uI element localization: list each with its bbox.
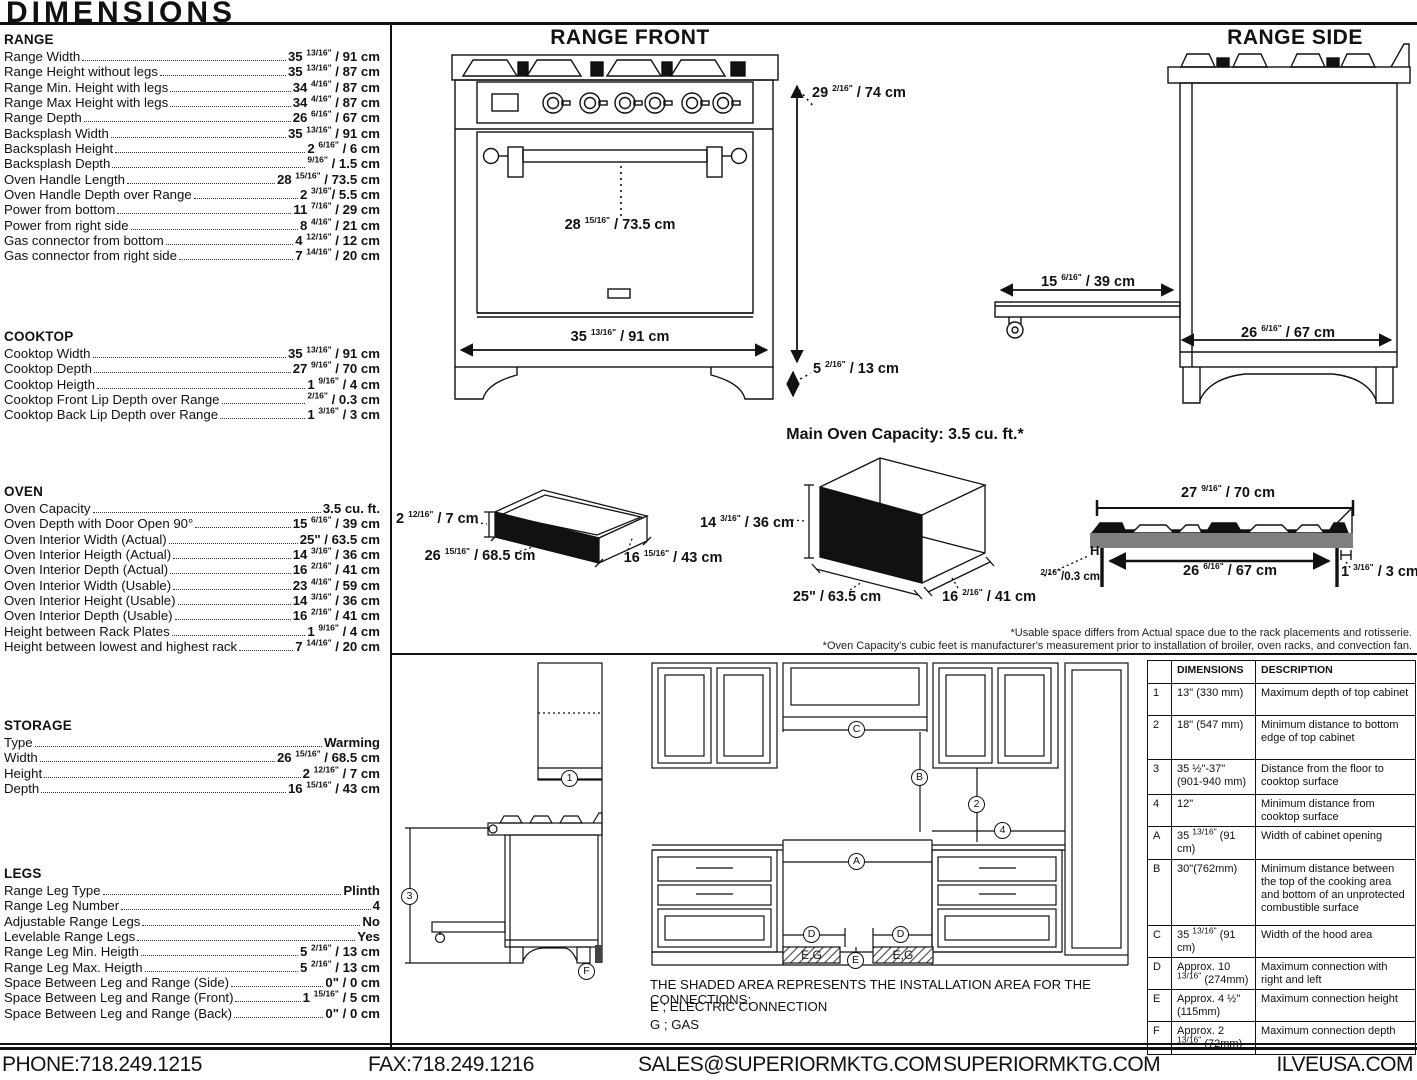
callout-a: A — [848, 853, 865, 870]
row-description: Distance from the floor to cooktop surfa… — [1256, 760, 1416, 795]
spec-value: 0" / 0 cm — [325, 1006, 380, 1021]
dot-leader — [142, 925, 360, 926]
spec-label: Height between lowest and highest rack — [4, 639, 237, 654]
dot-leader — [166, 244, 294, 245]
spec-label: Height — [4, 766, 42, 781]
dot-leader — [170, 573, 291, 574]
row-dimension: Approx. 4 ½" (115mm) — [1172, 989, 1256, 1021]
oven-height-dimension: 14 3/16" / 36 cm — [700, 515, 788, 531]
spec-value: 35 13/16" / 87 cm — [288, 64, 380, 79]
spec-label: Oven Interior Width (Usable) — [4, 578, 171, 593]
footer-rule-thin — [0, 1043, 1417, 1045]
range-spec-section: RANGE Range Width35 13/16" / 91 cm Range… — [4, 32, 380, 264]
dot-leader — [141, 955, 298, 956]
dot-leader — [82, 60, 286, 61]
callout-4: 4 — [994, 822, 1011, 839]
spec-value: Warming — [324, 735, 380, 750]
spec-row: Range Leg Max. Heigth5 2/16" / 13 cm — [4, 960, 380, 975]
spec-row: Adjustable Range LegsNo — [4, 914, 380, 929]
row-description: Maximum depth of top cabinet — [1256, 684, 1416, 716]
row-id: C — [1148, 926, 1172, 958]
spec-value: 1 3/16" / 3 cm — [307, 407, 380, 422]
dot-leader — [234, 1017, 323, 1018]
spec-value: 1 9/16" / 4 cm — [307, 624, 380, 639]
dot-leader — [93, 512, 321, 513]
callout-f: F — [578, 963, 595, 980]
spec-label: Range Depth — [4, 110, 82, 125]
side-door-dimension: 15 6/16" / 39 cm — [1013, 274, 1163, 290]
front-handle-dimension: 28 15/16" / 73.5 cm — [525, 217, 715, 233]
dot-leader — [173, 589, 291, 590]
row-id: 2 — [1148, 716, 1172, 760]
callout-2: 2 — [968, 796, 985, 813]
spec-value: 2/16" / 0.3 cm — [307, 392, 380, 407]
install-side-drawing — [400, 658, 650, 1008]
spec-row: Backsplash Depth9/16" / 1.5 cm — [4, 156, 380, 171]
section-heading: OVEN — [4, 484, 380, 501]
row-dimension: 13" (330 mm) — [1172, 684, 1256, 716]
footer-website: SUPERIORMKTG.COM — [943, 1053, 1160, 1077]
row-id: B — [1148, 860, 1172, 926]
table-row: 218" (547 mm)Minimum distance to bottom … — [1148, 716, 1416, 760]
spec-label: Type — [4, 735, 33, 750]
section-heading: LEGS — [4, 866, 380, 883]
spec-value: 16 2/16" / 41 cm — [293, 562, 380, 577]
table-row: A35 13/16" (91 cm)Width of cabinet openi… — [1148, 827, 1416, 860]
spec-label: Backsplash Height — [4, 141, 113, 156]
spec-value: 0" / 0 cm — [325, 975, 380, 990]
spec-row: Range Leg Number4 — [4, 898, 380, 913]
oven-spec-section: OVEN Oven Capacity3.5 cu. ft. Oven Depth… — [4, 484, 380, 654]
row-id: E — [1148, 989, 1172, 1021]
spec-value: 9/16" / 1.5 cm — [307, 156, 380, 171]
drawer-height-dimension: 2 12/16" / 7 cm — [396, 511, 472, 527]
installation-drawing — [645, 658, 1145, 973]
spec-value: Plinth — [343, 883, 380, 898]
dot-leader — [84, 121, 291, 122]
dot-leader — [239, 650, 293, 651]
dot-leader — [44, 777, 301, 778]
row-dimension: 12" — [1172, 795, 1256, 827]
dot-leader — [172, 635, 306, 636]
spec-label: Backsplash Depth — [4, 156, 110, 171]
dot-leader — [103, 894, 342, 895]
spec-label: Levelable Range Legs — [4, 929, 135, 944]
table-row: 412"Minimum distance from cooktop surfac… — [1148, 795, 1416, 827]
row-id: D — [1148, 957, 1172, 989]
spec-label: Depth — [4, 781, 39, 796]
row-description: Width of cabinet opening — [1256, 827, 1416, 860]
dot-leader — [127, 183, 275, 184]
spec-value: 25" / 63.5 cm — [300, 532, 380, 547]
spec-value: 7 14/16" / 20 cm — [295, 248, 380, 263]
spec-row: Space Between Leg and Range (Back)0" / 0… — [4, 1006, 380, 1021]
spec-label: Power from bottom — [4, 202, 115, 217]
table-header-row: DIMENSIONS DESCRIPTION — [1148, 661, 1416, 684]
spec-label: Oven Interior Depth (Usable) — [4, 608, 173, 623]
row-dimension: Approx. 10 13/16" (274mm) — [1172, 957, 1256, 989]
spec-label: Range Min. Height with legs — [4, 80, 168, 95]
dot-leader — [145, 971, 298, 972]
oven-width-dimension: 25" / 63.5 cm — [791, 589, 883, 605]
spec-value: 2 12/16" / 7 cm — [303, 766, 380, 781]
dot-leader — [131, 229, 298, 230]
cooktop-top-dimension: 27 9/16" / 70 cm — [1148, 485, 1308, 501]
spec-label: Adjustable Range Legs — [4, 914, 140, 929]
spec-label: Oven Handle Length — [4, 172, 125, 187]
dot-leader — [35, 746, 322, 747]
spec-label: Cooktop Heigth — [4, 377, 95, 392]
callout-e: E — [847, 952, 864, 969]
dot-leader — [111, 137, 286, 138]
spec-value: 11 7/16" / 29 cm — [293, 202, 380, 217]
spec-label: Oven Depth with Door Open 90° — [4, 516, 193, 531]
callout-d-right: D — [892, 926, 909, 943]
spec-label: Oven Handle Depth over Range — [4, 187, 192, 202]
spec-label: Range Leg Min. Heigth — [4, 944, 139, 959]
dot-leader — [178, 604, 291, 605]
row-id: 3 — [1148, 760, 1172, 795]
dot-leader — [93, 357, 286, 358]
spec-label: Space Between Leg and Range (Front) — [4, 990, 233, 1005]
cooktop-h-label: H — [1090, 543, 1099, 558]
cooktop-frontlip-dimension: 2/16"/0.3 cm — [1030, 571, 1100, 583]
spec-value: 28 15/16" / 73.5 cm — [277, 172, 380, 187]
spec-label: Space Between Leg and Range (Back) — [4, 1006, 232, 1021]
spec-label: Oven Interior Depth (Actual) — [4, 562, 168, 577]
dot-leader — [194, 198, 298, 199]
dot-leader — [94, 372, 291, 373]
spec-label: Range Height without legs — [4, 64, 158, 79]
row-id: A — [1148, 827, 1172, 860]
cooktop-backlip-dimension: 1 3/16" / 3 cm — [1341, 564, 1417, 580]
spec-value: 2 6/16" / 6 cm — [307, 141, 380, 156]
spec-value: 5 2/16" / 13 cm — [300, 944, 380, 959]
spec-row: Depth16 15/16" / 43 cm — [4, 781, 380, 796]
spec-label: Space Between Leg and Range (Side) — [4, 975, 229, 990]
table-row: 335 ½"-37" (901-940 mm)Distance from the… — [1148, 760, 1416, 795]
dot-leader — [40, 761, 275, 762]
spec-row: Oven Depth with Door Open 90°15 6/16" / … — [4, 516, 380, 531]
spec-value: 1 9/16" / 4 cm — [307, 377, 380, 392]
spec-label: Range Leg Type — [4, 883, 101, 898]
dot-leader — [117, 213, 291, 214]
spec-value: 7 14/16" / 20 cm — [295, 639, 380, 654]
drawer-depth-dimension: 16 15/16" / 43 cm — [618, 550, 728, 566]
spec-label: Width — [4, 750, 38, 765]
spec-value: 2 3/16"/ 5.5 cm — [300, 187, 380, 202]
row-description: Maximum connection with right and left — [1256, 957, 1416, 989]
table-header-dimensions: DIMENSIONS — [1172, 661, 1256, 684]
spec-row: TypeWarming — [4, 735, 380, 750]
front-width-dimension: 35 13/16" / 91 cm — [530, 329, 710, 345]
spec-value: 26 6/16" / 67 cm — [293, 110, 380, 125]
spec-value: 8 4/16" / 21 cm — [300, 218, 380, 233]
footer-ilve-website: ILVEUSA.COM — [1240, 1053, 1413, 1077]
footer-phone: PHONE:718.249.1215 — [2, 1053, 202, 1077]
dot-leader — [222, 403, 306, 404]
range-side-drawing — [985, 22, 1417, 422]
spec-label: Gas connector from bottom — [4, 233, 164, 248]
row-description: Minimum distance to bottom edge of top c… — [1256, 716, 1416, 760]
spec-label: Cooktop Depth — [4, 361, 92, 376]
spec-value: 27 9/16" / 70 cm — [293, 361, 380, 376]
spec-value: No — [362, 914, 380, 929]
dot-leader — [41, 792, 286, 793]
dot-leader — [112, 167, 305, 168]
spec-value: 34 4/16" / 87 cm — [293, 95, 380, 110]
spec-value: 14 3/16" / 36 cm — [293, 593, 380, 608]
row-description: Maximum connection height — [1256, 989, 1416, 1021]
row-dimension: 35 13/16" (91 cm) — [1172, 827, 1256, 860]
spec-label: Power from right side — [4, 218, 129, 233]
side-depth-dimension: 26 6/16" / 67 cm — [1213, 325, 1363, 341]
footnote-usable-space: *Usable space differs from Actual space … — [600, 627, 1412, 639]
footer-fax: FAX:718.249.1216 — [368, 1053, 534, 1077]
dot-leader — [179, 259, 293, 260]
section-heading: STORAGE — [4, 718, 380, 735]
row-dimension: 18" (547 mm) — [1172, 716, 1256, 760]
table-row: DApprox. 10 13/16" (274mm)Maximum connec… — [1148, 957, 1416, 989]
spec-label: Cooktop Front Lip Depth over Range — [4, 392, 220, 407]
row-description: Width of the hood area — [1256, 926, 1416, 958]
dot-leader — [160, 75, 286, 76]
section-heading: COOKTOP — [4, 329, 380, 346]
row-id: 1 — [1148, 684, 1172, 716]
spec-value: 15 6/16" / 39 cm — [293, 516, 380, 531]
legs-spec-section: LEGS Range Leg TypePlinth Range Leg Numb… — [4, 866, 380, 1021]
spec-label: Height between Rack Plates — [4, 624, 170, 639]
spec-value: 34 4/16" / 87 cm — [293, 80, 380, 95]
spec-label: Oven Interior Heigth (Actual) — [4, 547, 171, 562]
row-dimension: 35 ½"-37" (901-940 mm) — [1172, 760, 1256, 795]
dot-leader — [175, 619, 291, 620]
spec-row: Gas connector from right side7 14/16" / … — [4, 248, 380, 263]
row-description: Minimum distance from cooktop surface — [1256, 795, 1416, 827]
cooktop-inner-dimension: 26 6/16" / 67 cm — [1150, 563, 1310, 579]
storage-spec-section: STORAGE TypeWarming Width26 15/16" / 68.… — [4, 718, 380, 796]
gas-connection-note: G ; GAS — [650, 1017, 850, 1032]
dot-leader — [220, 418, 305, 419]
spec-value: 35 13/16" / 91 cm — [288, 126, 380, 141]
row-description: Minimum distance between the top of the … — [1256, 860, 1416, 926]
vertical-divider — [390, 24, 392, 1047]
spec-label: Oven Capacity — [4, 501, 91, 516]
dot-leader — [115, 152, 305, 153]
page-title: DIMENSIONS — [6, 0, 236, 30]
front-leg-dimension: 5 2/16" / 13 cm — [813, 361, 899, 377]
footnote-oven-capacity: *Oven Capacity's cubic feet is manufactu… — [600, 640, 1412, 652]
spec-value: 16 15/16" / 43 cm — [288, 781, 380, 796]
spec-value: 3.5 cu. ft. — [323, 501, 380, 516]
drawer-width-dimension: 26 15/16" / 68.5 cm — [424, 548, 536, 564]
spec-label: Cooktop Width — [4, 346, 91, 361]
section-heading: RANGE — [4, 32, 380, 49]
spec-value: 26 15/16" / 68.5 cm — [277, 750, 380, 765]
spec-value: 16 2/16" / 41 cm — [293, 608, 380, 623]
spec-label: Gas connector from right side — [4, 248, 177, 263]
table-row: B30"(762mm)Minimum distance between the … — [1148, 860, 1416, 926]
spec-value: 5 2/16" / 13 cm — [300, 960, 380, 975]
electric-connection-note: E ; ELECTRIC CONNECTION — [650, 999, 950, 1014]
dimensions-table: DIMENSIONS DESCRIPTION 113" (330 mm)Maxi… — [1147, 660, 1416, 1055]
dimensions-sheet: DIMENSIONS RANGE Range Width35 13/16" / … — [0, 0, 1417, 1080]
dot-leader — [231, 986, 323, 987]
table-row: EApprox. 4 ½" (115mm)Maximum connection … — [1148, 989, 1416, 1021]
spec-label: Oven Interior Height (Usable) — [4, 593, 176, 608]
spec-value: 23 4/16" / 59 cm — [293, 578, 380, 593]
dot-leader — [170, 91, 290, 92]
front-height-dimension: 29 2/16" / 74 cm — [812, 85, 906, 101]
oven-depth-dimension: 16 2/16" / 41 cm — [938, 589, 1040, 605]
spec-row: Space Between Leg and Range (Front)1 15/… — [4, 990, 380, 1005]
spec-value: 4 12/16" / 12 cm — [295, 233, 380, 248]
spec-label: Cooktop Back Lip Depth over Range — [4, 407, 218, 422]
spec-value: 14 3/16" / 36 cm — [293, 547, 380, 562]
dot-leader — [235, 1001, 300, 1002]
spec-label: Range Width — [4, 49, 80, 64]
dot-leader — [173, 558, 291, 559]
footer-email: SALES@SUPERIORMKTG.COM — [638, 1053, 941, 1077]
spec-label: Oven Interior Width (Actual) — [4, 532, 167, 547]
table-row: C35 13/16" (91 cm)Width of the hood area — [1148, 926, 1416, 958]
dot-leader — [137, 940, 355, 941]
spec-row: Height between lowest and highest rack7 … — [4, 639, 380, 654]
row-dimension: 35 13/16" (91 cm) — [1172, 926, 1256, 958]
spec-row: Range Leg TypePlinth — [4, 883, 380, 898]
spec-label: Backsplash Width — [4, 126, 109, 141]
callout-c: C — [848, 721, 865, 738]
spec-value: 1 15/16" / 5 cm — [303, 990, 380, 1005]
spec-value: 35 13/16" / 91 cm — [288, 346, 380, 361]
dot-leader — [97, 388, 305, 389]
callout-b: B — [911, 769, 928, 786]
row-dimension: 30"(762mm) — [1172, 860, 1256, 926]
spec-value: Yes — [357, 929, 380, 944]
footer-rule-thick — [0, 1047, 1417, 1050]
dot-leader — [170, 106, 290, 107]
hatch-label-right: E,G — [873, 947, 933, 963]
row-id: 4 — [1148, 795, 1172, 827]
spec-value: 35 13/16" / 91 cm — [288, 49, 380, 64]
callout-3: 3 — [401, 888, 418, 905]
cooktop-spec-section: COOKTOP Cooktop Width35 13/16" / 91 cm C… — [4, 329, 380, 423]
spec-label: Range Leg Number — [4, 898, 119, 913]
dot-leader — [121, 909, 371, 910]
table-row: 113" (330 mm)Maximum depth of top cabine… — [1148, 684, 1416, 716]
table-header-description: DESCRIPTION — [1256, 661, 1416, 684]
callout-1: 1 — [561, 770, 578, 787]
dot-leader — [195, 527, 290, 528]
spec-label: Range Leg Max. Heigth — [4, 960, 143, 975]
callout-d-left: D — [803, 926, 820, 943]
spec-label: Range Max Height with legs — [4, 95, 168, 110]
table-corner-cell — [1148, 661, 1172, 684]
spec-value: 4 — [373, 898, 380, 913]
hatch-label-left: E,G — [783, 947, 840, 963]
spec-row: Cooktop Back Lip Depth over Range1 3/16"… — [4, 407, 380, 422]
storage-drawer-drawing — [395, 420, 790, 655]
dot-leader — [169, 543, 298, 544]
